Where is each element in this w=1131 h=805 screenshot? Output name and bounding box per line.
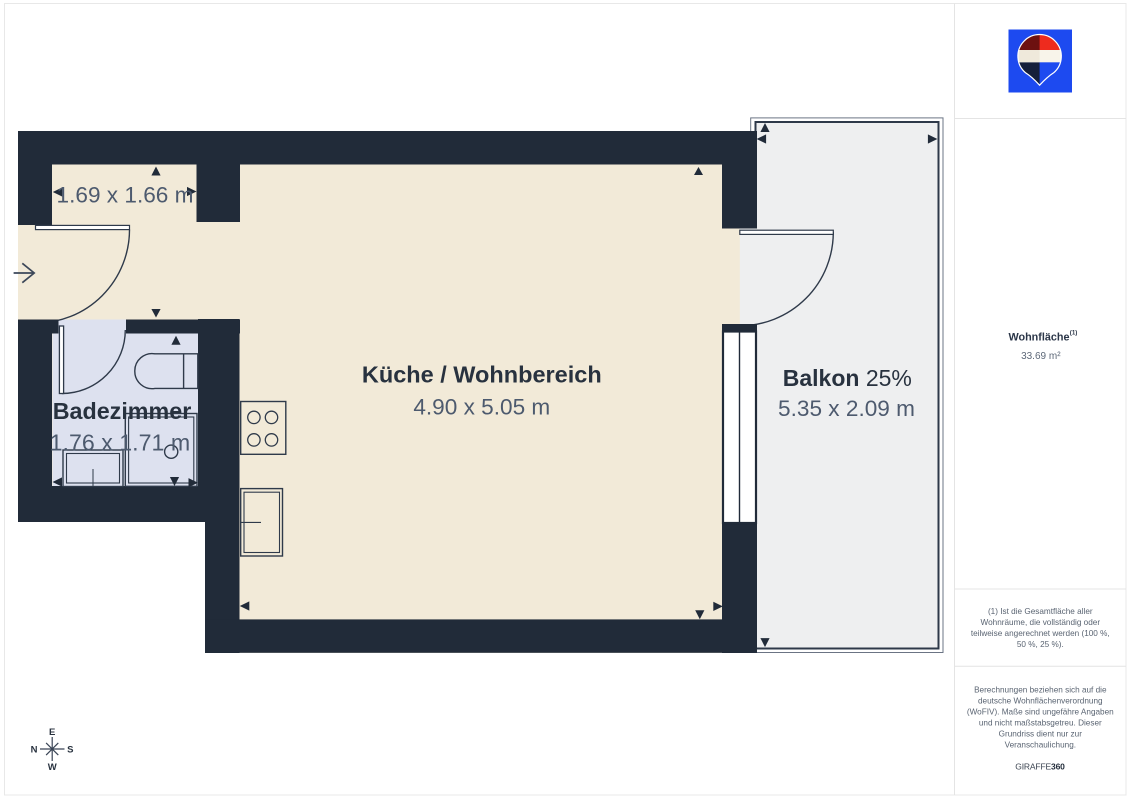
svg-text:Veranschaulichung.: Veranschaulichung. [1005, 741, 1076, 750]
svg-text:Balkon 25%: Balkon 25% [783, 365, 912, 391]
svg-text:Küche / Wohnbereich: Küche / Wohnbereich [362, 361, 602, 387]
svg-text:und nicht maßstabsgetreu. Dies: und nicht maßstabsgetreu. Dieser [979, 719, 1102, 728]
svg-text:(1): (1) [1070, 330, 1078, 337]
svg-text:50 %, 25 %).: 50 %, 25 %). [1017, 640, 1064, 649]
svg-text:S: S [67, 745, 73, 756]
svg-text:GIRAFFE360: GIRAFFE360 [1015, 761, 1065, 771]
svg-text:1.76 x 1.71 m: 1.76 x 1.71 m [50, 430, 191, 456]
svg-text:deutsche Wohnflächenverordnung: deutsche Wohnflächenverordnung [978, 697, 1103, 706]
svg-text:1.69 x 1.66 m: 1.69 x 1.66 m [57, 183, 194, 208]
svg-text:N: N [31, 745, 38, 756]
svg-text:(1) Ist die Gesamtfläche aller: (1) Ist die Gesamtfläche aller [988, 607, 1093, 616]
svg-text:Berechnungen beziehen sich auf: Berechnungen beziehen sich auf die [974, 686, 1107, 695]
svg-text:W: W [48, 762, 57, 773]
svg-text:E: E [49, 727, 55, 738]
svg-text:33.69 m²: 33.69 m² [1021, 351, 1061, 362]
svg-text:Wohnräume, die vollständig ode: Wohnräume, die vollständig oder [981, 618, 1101, 627]
svg-text:teilweise angerechnet werden (: teilweise angerechnet werden (100 %, [971, 629, 1110, 638]
svg-text:Grundriss dient nur zur: Grundriss dient nur zur [999, 730, 1083, 739]
svg-text:4.90 x 5.05 m: 4.90 x 5.05 m [413, 394, 550, 419]
svg-text:Wohnfläche: Wohnfläche [1009, 332, 1070, 344]
svg-text:(WoFIV). Maße sind ungefähre A: (WoFIV). Maße sind ungefähre Angaben [967, 708, 1114, 717]
svg-text:5.35 x 2.09 m: 5.35 x 2.09 m [778, 396, 915, 421]
svg-text:Badezimmer: Badezimmer [53, 398, 192, 424]
